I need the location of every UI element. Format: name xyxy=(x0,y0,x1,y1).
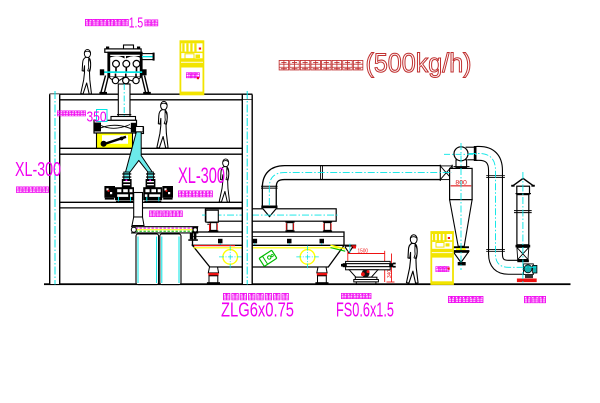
svg-text:1500: 1500 xyxy=(358,249,369,255)
svg-text:ZLG6x0.75: ZLG6x0.75 xyxy=(221,300,294,322)
svg-text:XL-300: XL-300 xyxy=(178,163,225,188)
svg-text:XL-300: XL-300 xyxy=(15,159,61,181)
svg-text:(500kg/h): (500kg/h) xyxy=(366,48,472,78)
svg-text:350: 350 xyxy=(87,109,107,126)
svg-text:340: 340 xyxy=(387,270,393,278)
svg-text:FS0.6x1.5: FS0.6x1.5 xyxy=(336,300,394,322)
svg-text:1.5: 1.5 xyxy=(129,16,144,32)
